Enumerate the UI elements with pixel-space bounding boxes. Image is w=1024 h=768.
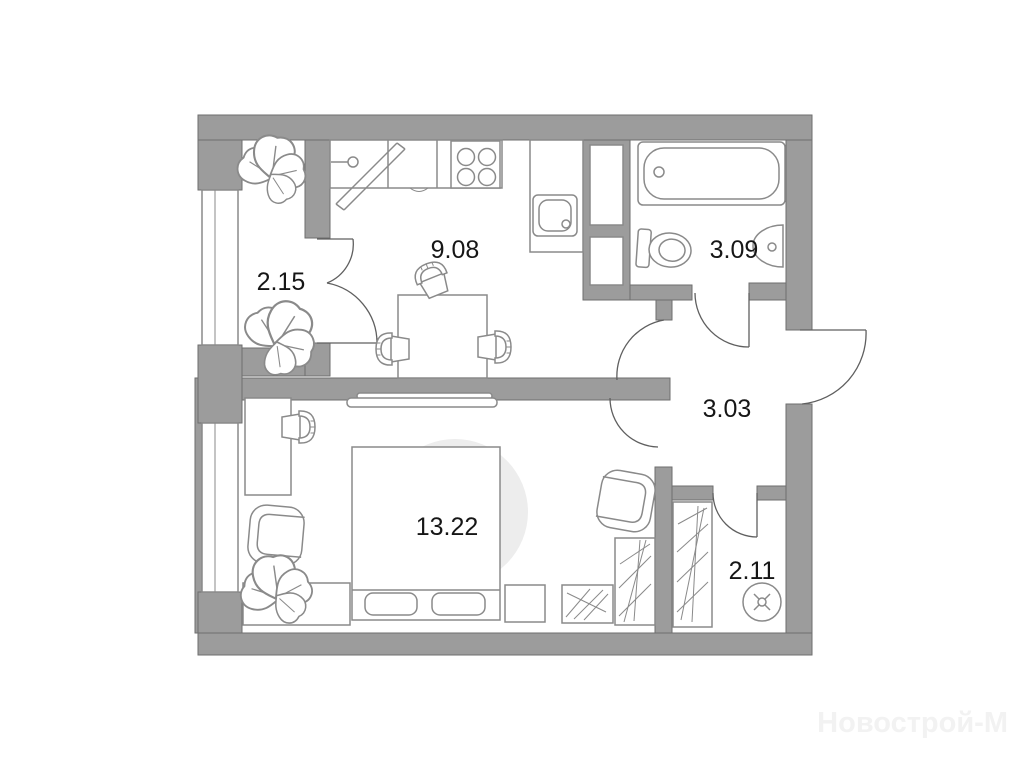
pillow: [365, 593, 417, 615]
wall-outer-bottom: [198, 633, 812, 655]
closet-door: [713, 493, 757, 537]
plant-balcony-top: [232, 133, 307, 207]
nightstand: [505, 585, 545, 622]
chair-top: [411, 258, 453, 301]
stove: [451, 141, 500, 188]
bathtub: [638, 142, 785, 205]
wall-closet-north-right: [757, 486, 786, 500]
floor-plan: 2.15 9.08 3.09 3.03 13.22 2.11 Новострой…: [0, 0, 1024, 768]
wall-outer-right-lower: [786, 404, 812, 633]
floor-plan-svg: 2.15 9.08 3.09 3.03 13.22 2.11: [0, 0, 1024, 768]
wall-outer-top: [198, 115, 812, 140]
balcony-door: [317, 239, 377, 343]
chair-right: [478, 331, 511, 363]
pillow: [432, 593, 485, 615]
area-label-hallway: 3.03: [703, 395, 752, 423]
bedroom-window: [202, 423, 238, 592]
wall-stub-kitchen: [656, 300, 672, 320]
area-label-storage: 2.11: [729, 557, 776, 585]
shaft-niche-lower: [590, 237, 623, 285]
shaft-niche-upper: [590, 145, 623, 225]
entrance-door: [800, 330, 866, 404]
bathroom-door: [695, 293, 749, 347]
wall-closet-north-left: [672, 486, 713, 500]
wall-bedroom-closet-divider: [655, 467, 672, 633]
kitchen-sink: [533, 195, 577, 236]
wall-shelf: [347, 393, 497, 407]
desk-chair: [282, 411, 315, 443]
wall-outer-right-upper: [786, 140, 812, 330]
kitchen-door-arc: [617, 320, 664, 380]
washing-machine: [743, 583, 781, 621]
closet-wardrobe: [673, 502, 712, 627]
desk: [245, 398, 291, 495]
area-label-bedroom: 13.22: [416, 513, 479, 541]
wall-bath-south-left: [630, 285, 692, 300]
watermark: Новострой-М: [817, 707, 1008, 740]
toilet: [636, 229, 693, 271]
wardrobe-low: [562, 585, 613, 623]
area-label-balcony: 2.15: [257, 268, 306, 296]
wall-block-topleft: [198, 140, 242, 190]
balcony-glazing: [202, 190, 238, 345]
wall-block-midleft: [198, 345, 242, 423]
tub-chair: [594, 468, 657, 534]
chair-left: [376, 333, 409, 365]
wall-bath-south-right: [749, 283, 786, 300]
wardrobe-tall: [615, 538, 655, 625]
wall-balcony-divider-upper: [305, 140, 330, 238]
area-label-bathroom: 3.09: [710, 236, 759, 264]
bedroom-door-arc: [610, 398, 658, 447]
area-label-kitchen: 9.08: [431, 236, 480, 264]
wall-block-bottomleft: [198, 592, 242, 633]
dining-table: [398, 295, 487, 378]
